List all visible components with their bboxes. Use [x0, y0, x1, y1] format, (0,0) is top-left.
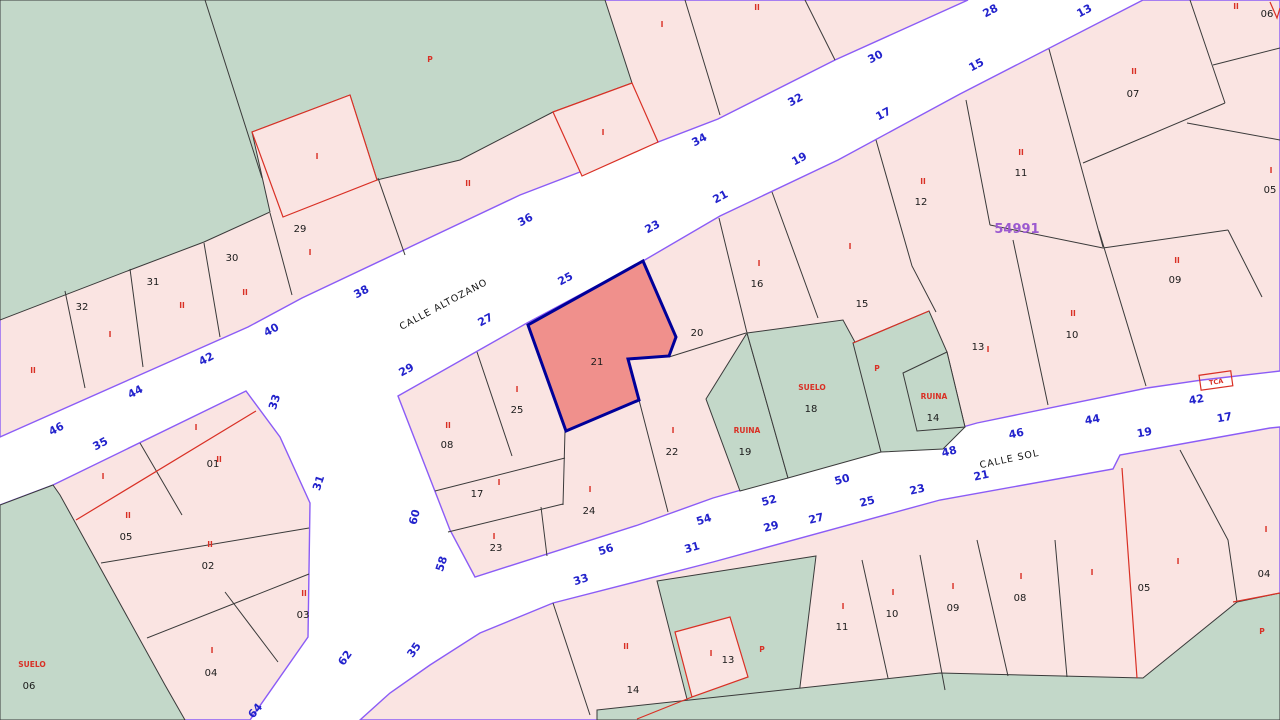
parcel-number-08: 08	[1014, 593, 1027, 604]
red-mark-i: I	[1091, 568, 1094, 577]
red-mark-i: I	[516, 385, 519, 394]
parcel-number-18: 18	[805, 404, 818, 415]
red-mark-i: I	[211, 646, 214, 655]
red-mark-ii: II	[242, 288, 248, 297]
parcel-number-04: 04	[205, 668, 218, 679]
red-mark-i: I	[102, 472, 105, 481]
red-mark-i: I	[1020, 572, 1023, 581]
red-mark-ii: II	[179, 301, 185, 310]
red-mark-i: I	[661, 20, 664, 29]
red-mark-i: I	[316, 152, 319, 161]
red-mark-ii: II	[1131, 67, 1137, 76]
red-mark-ii: II	[754, 3, 760, 12]
parcel-number-19: 19	[739, 447, 752, 458]
red-mark-i: I	[892, 588, 895, 597]
red-mark-suelo: SUELO	[798, 383, 826, 392]
parcel-number-10: 10	[886, 609, 899, 620]
red-mark-i: I	[672, 426, 675, 435]
parcel-number-32: 32	[76, 302, 89, 313]
red-mark-p: P	[427, 55, 433, 64]
parcel-number-09: 09	[1169, 275, 1182, 286]
parcel-number-13: 13	[722, 655, 735, 666]
parcel-number-02: 02	[202, 561, 215, 572]
house-number-19: 19	[1136, 425, 1153, 440]
red-mark-i: I	[842, 602, 845, 611]
house-number-17: 17	[1216, 410, 1233, 425]
house-number-42: 42	[1188, 392, 1205, 407]
block-number-label: 54991	[994, 222, 1039, 237]
red-mark-i: I	[589, 485, 592, 494]
parcel-number-17: 17	[471, 489, 484, 500]
parcel-number-20: 20	[691, 328, 704, 339]
red-mark-p: P	[759, 645, 765, 654]
red-mark-i: I	[493, 532, 496, 541]
parcel-number-15: 15	[856, 299, 869, 310]
parcel-number-06: 06	[23, 681, 36, 692]
red-mark-p: P	[874, 364, 880, 373]
parcel-number-13: 13	[972, 342, 985, 353]
parcel-number-24: 24	[583, 506, 596, 517]
cadastral-map-viewport[interactable]: TCA 54991 464442403836343230283529272523…	[0, 0, 1280, 720]
red-mark-i: I	[1177, 557, 1180, 566]
red-mark-i: I	[195, 423, 198, 432]
parcel-number-30: 30	[226, 253, 239, 264]
red-mark-i: I	[758, 259, 761, 268]
red-mark-ii: II	[1018, 148, 1024, 157]
parcel-number-05: 05	[120, 532, 133, 543]
red-mark-ii: II	[1070, 309, 1076, 318]
red-mark-i: I	[710, 649, 713, 658]
red-mark-ii: II	[1174, 256, 1180, 265]
red-mark-ii: II	[125, 511, 131, 520]
parcel-number-22: 22	[666, 447, 679, 458]
parcel-number-11: 11	[836, 622, 849, 633]
red-mark-i: I	[1265, 525, 1268, 534]
parcel-number-12: 12	[915, 197, 928, 208]
parcel-number-03: 03	[297, 610, 310, 621]
parcel-number-07: 07	[1127, 89, 1140, 100]
red-mark-i: I	[602, 128, 605, 137]
red-mark-ii: II	[465, 179, 471, 188]
parcel-number-04: 04	[1258, 569, 1271, 580]
red-mark-ii: II	[1233, 2, 1239, 11]
red-mark-ii: II	[445, 421, 451, 430]
parcel-number-10: 10	[1066, 330, 1079, 341]
red-mark-p: P	[1259, 627, 1265, 636]
red-mark-i: I	[849, 242, 852, 251]
red-mark-ii: II	[30, 366, 36, 375]
red-mark-ii: II	[301, 589, 307, 598]
parcel-number-23: 23	[490, 543, 503, 554]
parcel-number-16: 16	[751, 279, 764, 290]
parcel-number-14: 14	[627, 685, 640, 696]
red-mark-i: I	[1270, 166, 1273, 175]
red-mark-i: I	[952, 582, 955, 591]
parcel-number-05: 05	[1138, 583, 1151, 594]
parcel-number-25: 25	[511, 405, 524, 416]
red-mark-ruina: RUINA	[734, 426, 761, 435]
red-mark-i: I	[987, 345, 990, 354]
red-mark-ii: II	[207, 540, 213, 549]
house-number-44: 44	[1084, 412, 1102, 428]
red-mark-ii: II	[216, 455, 222, 464]
parcel-number-09: 09	[947, 603, 960, 614]
parcel-number-29: 29	[294, 224, 307, 235]
red-mark-i: I	[109, 330, 112, 339]
red-mark-ii: II	[623, 642, 629, 651]
red-mark-i: I	[498, 478, 501, 487]
parcel-number-31: 31	[147, 277, 160, 288]
red-mark-i: I	[309, 248, 312, 257]
red-mark-ruina: RUINA	[921, 392, 948, 401]
parcel-number-08: 08	[441, 440, 454, 451]
red-mark-suelo: SUELO	[18, 660, 46, 669]
parcel-number-05: 05	[1264, 185, 1277, 196]
red-mark-ii: II	[920, 177, 926, 186]
parcel-number-21: 21	[591, 357, 604, 368]
parcel-number-11: 11	[1015, 168, 1028, 179]
parcel-number-14: 14	[927, 413, 940, 424]
parcel-number-06: 06	[1261, 9, 1274, 20]
map-canvas[interactable]: TCA 54991 464442403836343230283529272523…	[0, 0, 1280, 720]
